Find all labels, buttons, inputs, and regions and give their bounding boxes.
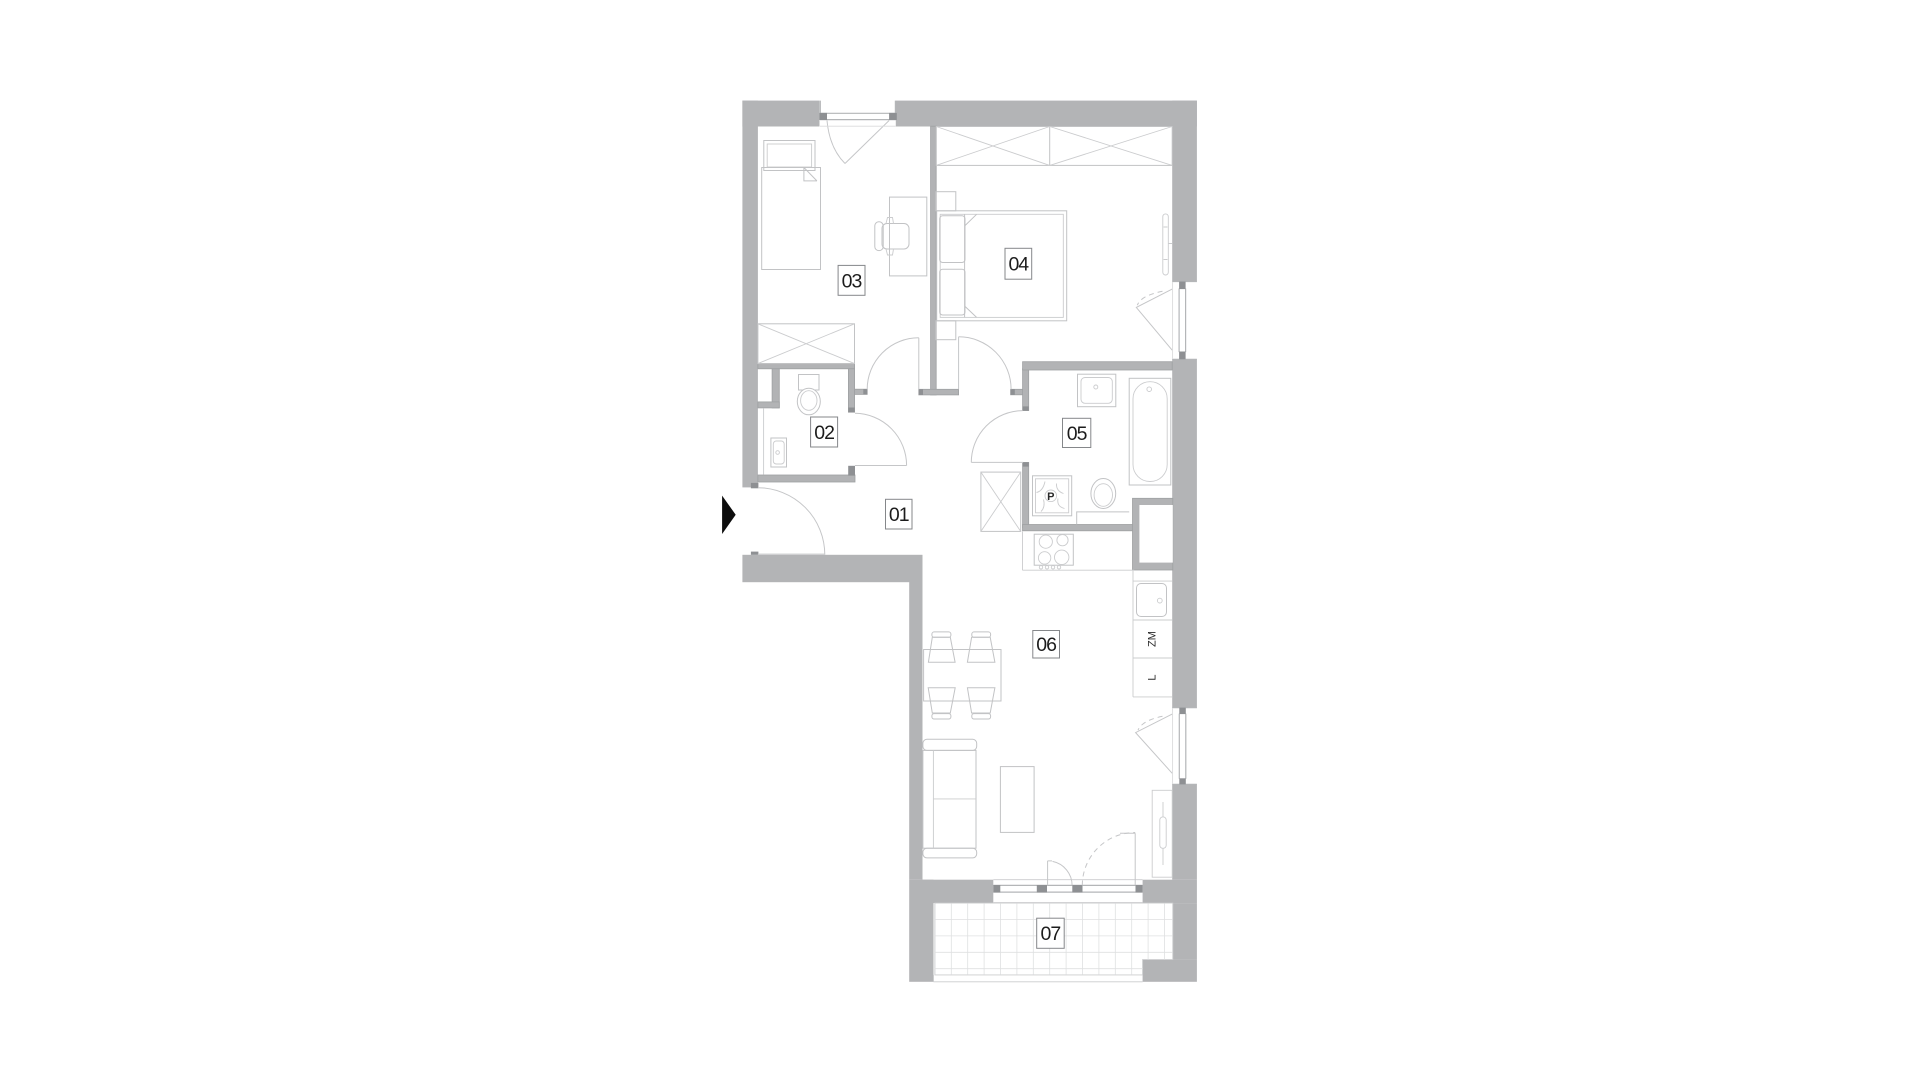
svg-text:02: 02	[814, 422, 834, 444]
svg-text:06: 06	[1036, 634, 1056, 656]
svg-text:04: 04	[1008, 254, 1029, 276]
svg-text:ZM: ZM	[1147, 631, 1159, 647]
svg-text:05: 05	[1067, 423, 1088, 445]
svg-text:03: 03	[842, 270, 862, 292]
svg-text:07: 07	[1041, 923, 1061, 945]
svg-text:01: 01	[889, 504, 909, 526]
svg-text:P: P	[1047, 491, 1054, 503]
svg-text:L: L	[1147, 674, 1159, 680]
